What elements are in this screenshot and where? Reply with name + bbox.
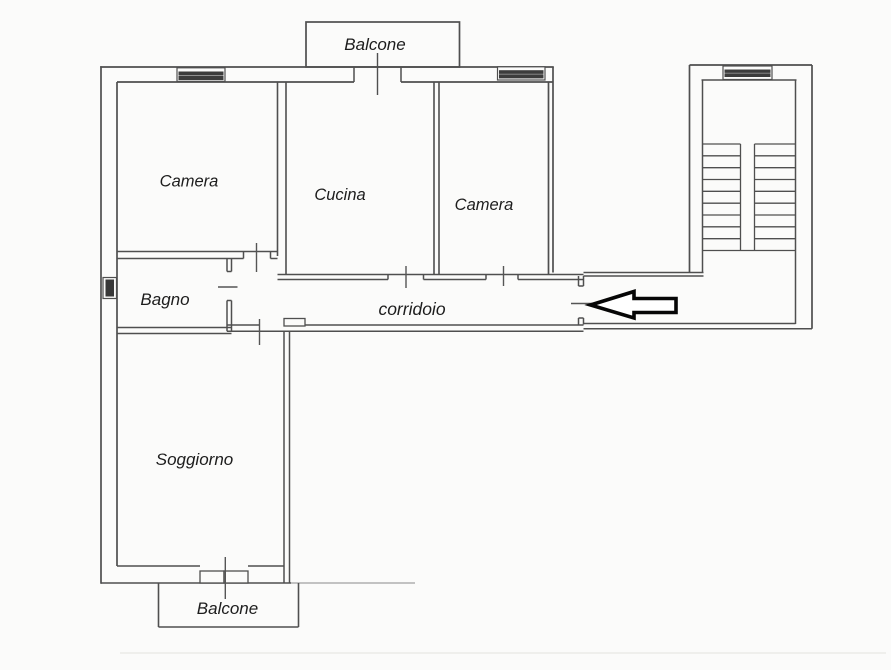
svg-text:corridoio: corridoio <box>378 299 445 319</box>
svg-text:Bagno: Bagno <box>140 290 189 309</box>
svg-text:Balcone: Balcone <box>344 35 405 54</box>
svg-text:Balcone: Balcone <box>197 599 258 618</box>
svg-text:Camera: Camera <box>455 196 514 214</box>
svg-text:Cucina: Cucina <box>314 186 365 204</box>
svg-text:Soggiorno: Soggiorno <box>156 450 234 469</box>
svg-text:Camera: Camera <box>160 173 219 191</box>
